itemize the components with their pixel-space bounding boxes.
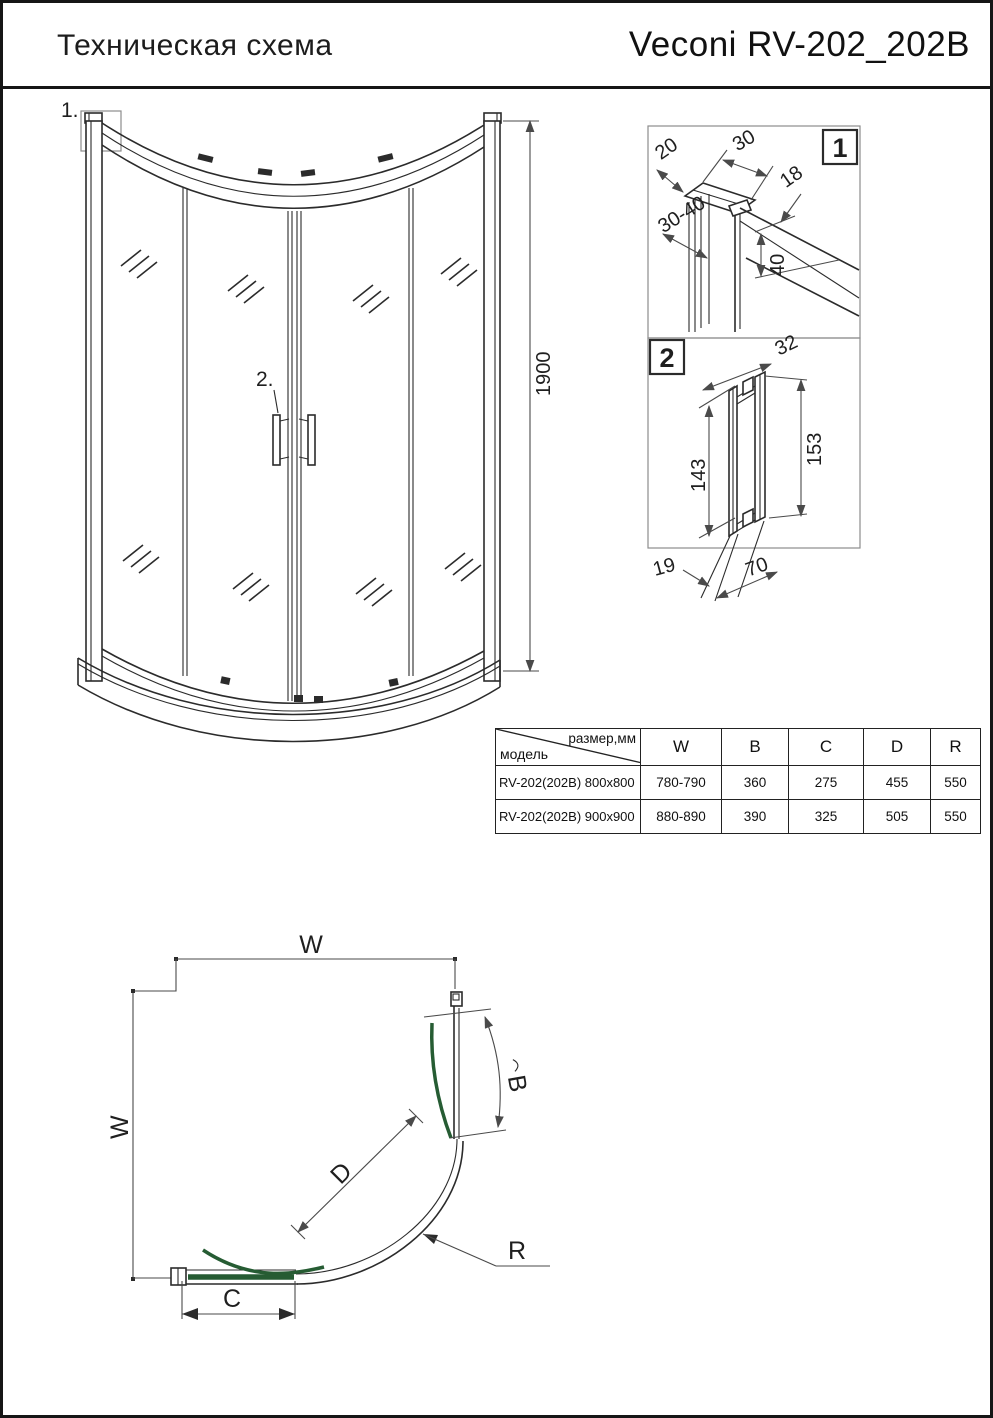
door-guide xyxy=(388,678,398,687)
plan-dim-d: D xyxy=(291,1109,423,1239)
model-title: Veconi RV-202_202B xyxy=(629,25,970,65)
plan-sliding-doors xyxy=(188,1023,451,1277)
c-cell: 275 xyxy=(789,766,864,800)
col-header-r: R xyxy=(931,729,981,766)
callout-1-label: 1. xyxy=(61,99,79,122)
table-corner-cell: размер,мм модель xyxy=(496,729,641,766)
dim-w-left-label: W xyxy=(106,1115,134,1139)
door-arc-right xyxy=(432,1023,451,1138)
detail-2-badge: 2 xyxy=(650,340,684,374)
left-wall-profile xyxy=(85,113,102,681)
door-guide xyxy=(314,696,323,703)
corner-model-label: модель xyxy=(500,746,548,762)
model-cell: RV-202(202B) 900x900 xyxy=(496,800,641,834)
dim-1900-label: 1900 xyxy=(533,352,555,397)
r-cell: 550 xyxy=(931,766,981,800)
r-cell: 550 xyxy=(931,800,981,834)
plan-dim-r: R xyxy=(423,1234,550,1266)
w-cell: 880-890 xyxy=(641,800,722,834)
corner-size-label: размер,мм xyxy=(568,731,636,746)
callout-2-label: 2. xyxy=(256,368,274,391)
dim-19-label: 19 xyxy=(651,554,678,581)
dim-18-label: 18 xyxy=(776,162,807,193)
dim-20-label: 20 xyxy=(651,134,682,165)
detail-1-badge: 1 xyxy=(823,130,857,164)
callout-2: 2. xyxy=(256,368,278,413)
dim-w-top-label: W xyxy=(299,931,323,959)
door-roller xyxy=(301,169,316,177)
dim-70-label: 70 xyxy=(743,553,771,581)
table-row: RV-202(202B) 900x900 880-890 390 325 505… xyxy=(496,800,981,834)
col-header-b: B xyxy=(722,729,789,766)
door-roller xyxy=(258,168,273,176)
col-header-w: W xyxy=(641,729,722,766)
detail-1-badge-label: 1 xyxy=(832,133,847,163)
dim-40-label: 40 xyxy=(767,254,789,276)
d-cell: 455 xyxy=(864,766,931,800)
door-handles-front xyxy=(273,415,315,465)
c-cell: 325 xyxy=(789,800,864,834)
door-roller xyxy=(197,153,213,162)
b-cell: 390 xyxy=(722,800,789,834)
table-row: RV-202(202B) 800x800 780-790 360 275 455… xyxy=(496,766,981,800)
door-guide xyxy=(294,695,303,702)
door-guide xyxy=(220,676,230,685)
door-roller xyxy=(377,153,393,162)
shower-tray xyxy=(78,658,500,742)
detail-2-badge-label: 2 xyxy=(659,343,674,373)
height-dimension-1900: 1900 xyxy=(503,121,555,671)
dim-r-label: R xyxy=(508,1237,526,1265)
technical-sheet: Техническая схема Veconi RV-202_202B 1. xyxy=(0,0,993,1418)
dim-143-label: 143 xyxy=(688,459,710,492)
sheet-title: Техническая схема xyxy=(57,29,333,63)
plan-view-drawing: W W xyxy=(98,923,568,1343)
detail-views-drawing: 1 20 30 18 30-40 xyxy=(643,118,893,610)
d-cell: 505 xyxy=(864,800,931,834)
bottom-rail xyxy=(102,649,484,711)
dim-30-label: 30 xyxy=(729,126,759,156)
b-cell: 360 xyxy=(722,766,789,800)
w-cell: 780-790 xyxy=(641,766,722,800)
col-header-d: D xyxy=(864,729,931,766)
glass-panel-dividers xyxy=(183,188,413,701)
plan-dim-w-left: W xyxy=(106,989,171,1281)
plan-dim-b: B xyxy=(424,1009,532,1138)
plan-walls-and-arc xyxy=(171,992,463,1285)
dim-c-label: C xyxy=(223,1285,241,1313)
dim-153-label: 153 xyxy=(804,433,826,466)
dim-b-label: B xyxy=(502,1073,532,1094)
plan-dim-c: C xyxy=(182,1281,295,1320)
dim-d-label: D xyxy=(325,1157,358,1190)
plan-dim-w-top: W xyxy=(133,931,457,991)
front-view-drawing: 1. xyxy=(53,93,553,763)
right-wall-profile xyxy=(484,113,501,681)
top-rail xyxy=(102,123,484,208)
title-bar: Техническая схема Veconi RV-202_202B xyxy=(3,3,990,89)
size-table: размер,мм модель W B C D R RV-202(202B) … xyxy=(495,728,981,834)
dim-32-label: 32 xyxy=(772,331,802,361)
model-cell: RV-202(202B) 800x800 xyxy=(496,766,641,800)
col-header-c: C xyxy=(789,729,864,766)
